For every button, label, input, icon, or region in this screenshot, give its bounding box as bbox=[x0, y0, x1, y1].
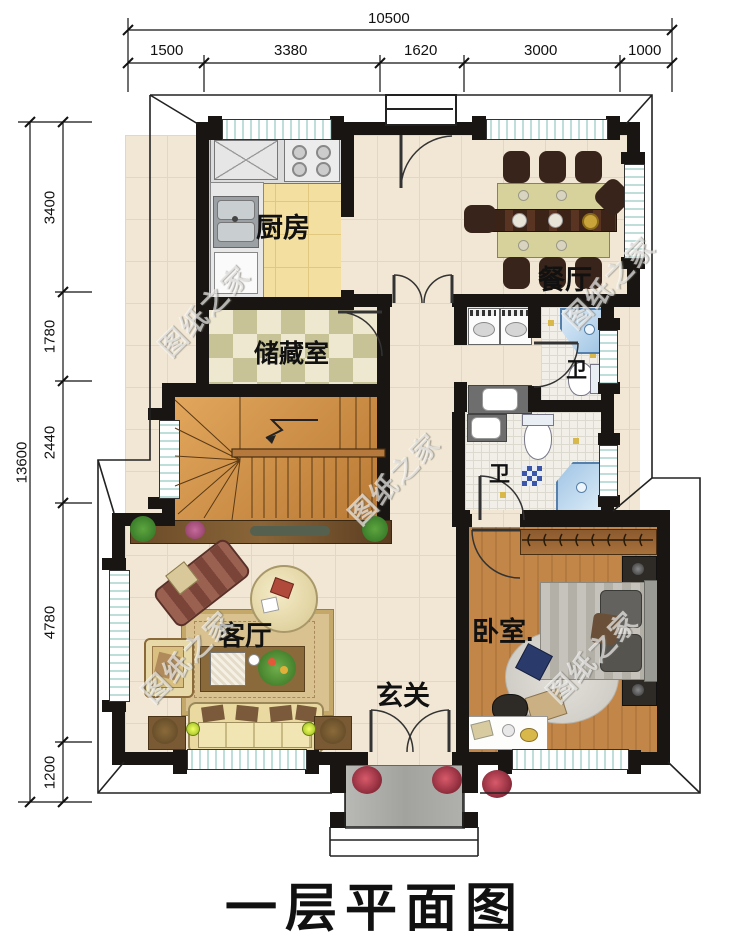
eave-outline bbox=[98, 95, 700, 856]
room-label-storage: 储藏室 bbox=[254, 334, 329, 370]
wardrobe-hangers bbox=[522, 534, 653, 546]
stair-rail bbox=[232, 449, 385, 457]
dim-left-seg-3: 2440 bbox=[42, 421, 59, 465]
room-label-foyer: 玄关 bbox=[376, 674, 430, 713]
room-label-bedroom: 卧室. bbox=[472, 610, 534, 649]
room-label-dining: 餐厅 bbox=[538, 258, 592, 297]
doors bbox=[338, 135, 578, 752]
dim-top-seg-1: 1500 bbox=[150, 42, 183, 59]
dim-top-total: 10500 bbox=[368, 10, 410, 27]
room-label-bath-upper: 卫 bbox=[566, 354, 587, 384]
dim-left-seg-5: 1200 bbox=[42, 751, 59, 795]
dimension-lines bbox=[18, 18, 672, 802]
stair-treads bbox=[175, 397, 372, 520]
floor-plan: 10500 1500 3380 1620 3000 1000 13600 340… bbox=[0, 0, 750, 943]
dim-left-seg-2: 1780 bbox=[42, 315, 59, 359]
linework-layer bbox=[0, 0, 750, 943]
dim-left-seg-1: 3400 bbox=[42, 186, 59, 230]
dim-top-seg-5: 1000 bbox=[628, 42, 661, 59]
room-label-bath-lower: 卫 bbox=[489, 458, 510, 488]
room-label-living: 客厅 bbox=[218, 614, 272, 653]
dim-top-seg-3: 1620 bbox=[404, 42, 437, 59]
stair-direction-arrow bbox=[266, 420, 318, 438]
dim-top-seg-2: 3380 bbox=[274, 42, 307, 59]
dim-left-total: 13600 bbox=[14, 441, 31, 485]
dimension-ticks bbox=[25, 25, 677, 807]
dim-left-seg-4: 4780 bbox=[42, 601, 59, 645]
dim-top-seg-4: 3000 bbox=[524, 42, 557, 59]
room-label-kitchen: 厨房 bbox=[256, 206, 310, 245]
plan-title: 一层平面图 bbox=[0, 866, 750, 941]
